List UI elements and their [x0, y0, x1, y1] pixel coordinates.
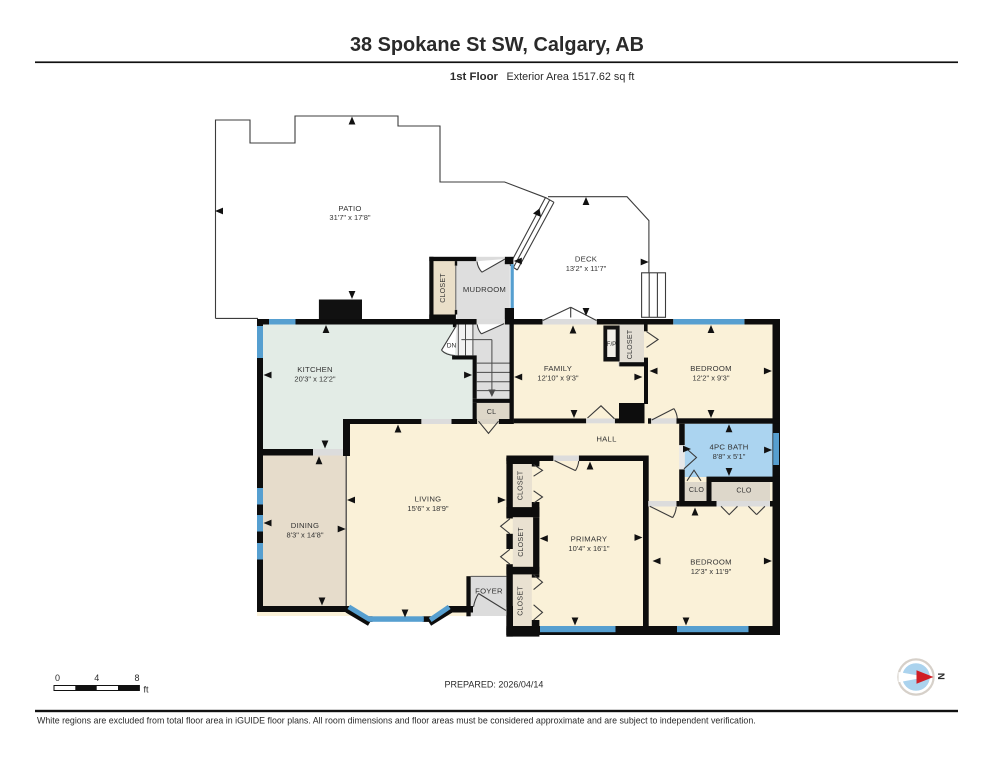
- svg-text:BEDROOM: BEDROOM: [690, 364, 731, 373]
- svg-text:12'2" x 9'3": 12'2" x 9'3": [693, 374, 730, 383]
- svg-text:MUDROOM: MUDROOM: [463, 285, 506, 294]
- svg-text:CLOSET: CLOSET: [626, 329, 634, 359]
- svg-text:CLO: CLO: [689, 486, 704, 494]
- svg-text:8'8" x 5'1": 8'8" x 5'1": [713, 452, 746, 461]
- svg-text:DN: DN: [447, 343, 457, 350]
- svg-text:FAMILY: FAMILY: [544, 364, 572, 373]
- svg-text:PRIMARY: PRIMARY: [571, 535, 608, 544]
- svg-text:CL: CL: [487, 408, 496, 416]
- svg-text:13'2" x 11'7": 13'2" x 11'7": [566, 264, 607, 273]
- svg-text:CLOSET: CLOSET: [439, 273, 447, 303]
- svg-text:0: 0: [55, 673, 60, 683]
- svg-text:8: 8: [134, 673, 139, 683]
- svg-text:N: N: [935, 673, 946, 680]
- svg-text:FOYER: FOYER: [475, 587, 503, 596]
- svg-text:10'4" x 16'1": 10'4" x 16'1": [568, 544, 609, 553]
- svg-text:4PC BATH: 4PC BATH: [709, 443, 748, 452]
- svg-text:KITCHEN: KITCHEN: [297, 365, 333, 374]
- svg-text:CLOSET: CLOSET: [517, 586, 525, 616]
- svg-text:12'10" x 9'3": 12'10" x 9'3": [537, 374, 578, 383]
- svg-text:F/P: F/P: [607, 341, 617, 348]
- svg-text:20'3" x 12'2": 20'3" x 12'2": [294, 375, 335, 384]
- svg-text:8'3" x 14'8": 8'3" x 14'8": [287, 531, 324, 540]
- svg-text:DECK: DECK: [575, 255, 598, 264]
- svg-text:CLOSET: CLOSET: [517, 527, 525, 557]
- svg-text:1st Floor: 1st Floor: [450, 71, 499, 83]
- svg-text:38 Spokane St SW, Calgary, AB: 38 Spokane St SW, Calgary, AB: [350, 34, 644, 56]
- svg-text:PATIO: PATIO: [338, 204, 361, 213]
- svg-text:CLOSET: CLOSET: [517, 470, 525, 500]
- svg-text:12'3" x 11'9": 12'3" x 11'9": [691, 567, 732, 576]
- svg-text:DINING: DINING: [291, 521, 319, 530]
- svg-text:4: 4: [94, 673, 99, 683]
- svg-text:Exterior Area 1517.62 sq ft: Exterior Area 1517.62 sq ft: [507, 71, 635, 83]
- svg-text:LIVING: LIVING: [415, 495, 442, 504]
- svg-text:31'7" x 17'8": 31'7" x 17'8": [329, 213, 370, 222]
- svg-text:ft: ft: [144, 685, 150, 695]
- svg-text:15'6" x 18'9": 15'6" x 18'9": [407, 504, 448, 513]
- svg-text:CLO: CLO: [736, 487, 751, 495]
- svg-text:BEDROOM: BEDROOM: [690, 558, 731, 567]
- svg-text:HALL: HALL: [596, 435, 617, 444]
- svg-text:White regions are excluded fro: White regions are excluded from total fl…: [37, 716, 756, 726]
- svg-text:PREPARED: 2026/04/14: PREPARED: 2026/04/14: [445, 680, 544, 690]
